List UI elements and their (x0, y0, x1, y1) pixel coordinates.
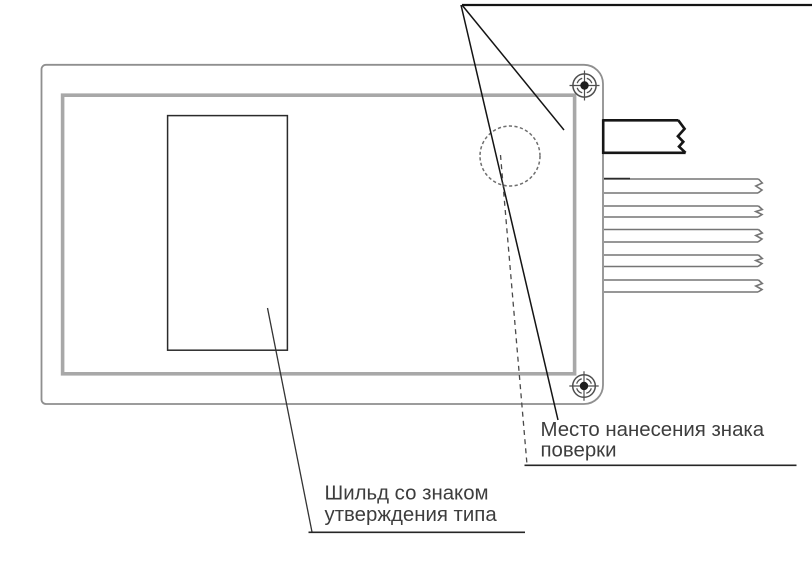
svg-text:Шильд со знаком: Шильд со знаком (325, 483, 489, 505)
svg-text:Место нанесения знака: Место нанесения знака (541, 419, 765, 441)
svg-text:поверки: поверки (541, 439, 617, 461)
svg-text:утверждения типа: утверждения типа (325, 504, 498, 526)
